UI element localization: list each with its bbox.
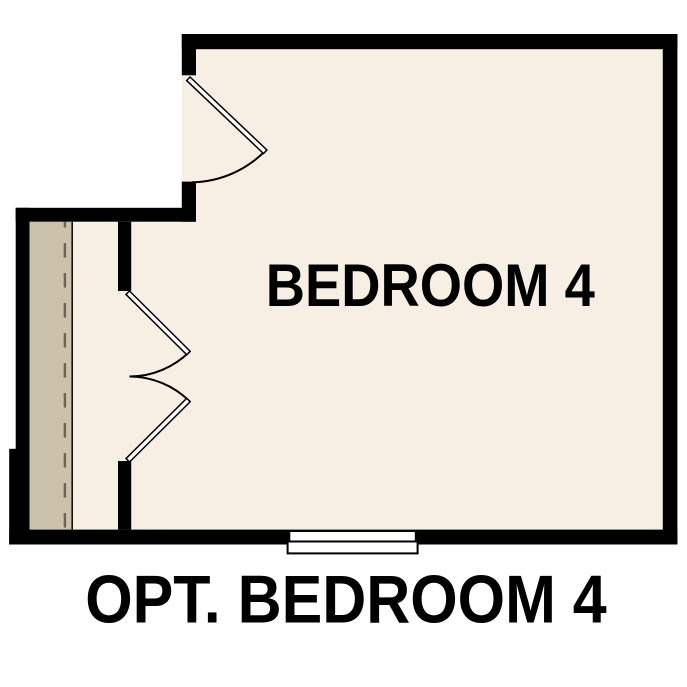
svg-text:OPT. BEDROOM 4: OPT. BEDROOM 4 bbox=[85, 563, 607, 638]
svg-text:BEDROOM 4: BEDROOM 4 bbox=[266, 251, 595, 319]
